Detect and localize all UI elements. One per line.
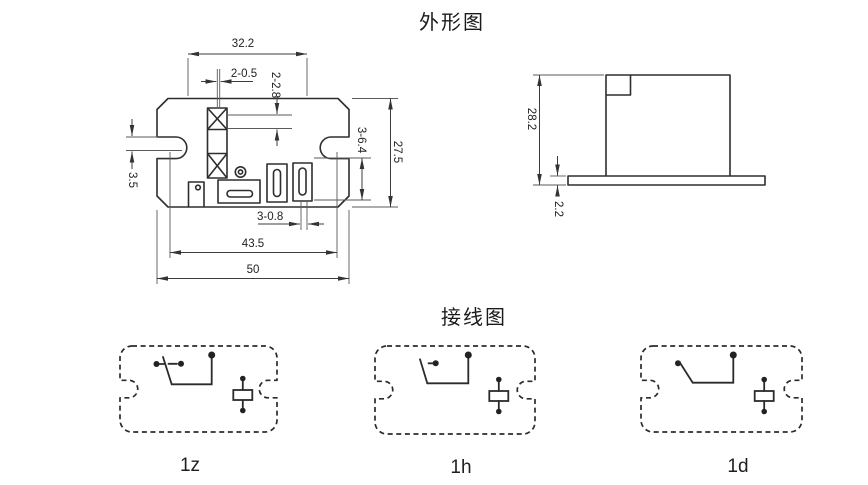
coil-terminal-dot <box>761 409 767 415</box>
contact-form-label-1d: 1d <box>727 456 748 477</box>
dim-slot-offset: 3.5 <box>126 119 182 188</box>
dim-top-width: 32.2 <box>188 38 307 96</box>
datasheet-drawing-page: 外形图 接线图 <box>0 0 868 485</box>
no-contact-dot <box>433 360 439 366</box>
dim-flange-thickness: 2.2 <box>550 156 566 217</box>
svg-text:2-2.8: 2-2.8 <box>269 72 281 98</box>
svg-text:32.2: 32.2 <box>232 38 254 50</box>
coil-terminal-dot <box>761 377 767 383</box>
svg-text:50: 50 <box>247 264 260 276</box>
nc-contact-dot <box>154 361 160 367</box>
svg-text:43.5: 43.5 <box>242 238 264 250</box>
outline-drawing-title: 外形图 <box>419 11 485 34</box>
wiring-diagram-title: 接线图 <box>441 306 507 329</box>
side-body <box>606 75 730 176</box>
svg-text:3.5: 3.5 <box>126 172 138 188</box>
dim-overall-height: 28.2 <box>525 75 604 185</box>
contact-arm <box>163 357 172 384</box>
dim-terminal-pitch: 2-2.8 <box>227 72 292 146</box>
common-terminal-dot <box>730 352 737 359</box>
relay-outline-dashed <box>641 346 802 432</box>
wiring-diagram-1h: 1h <box>375 346 535 478</box>
coil-terminal-dot <box>496 409 502 415</box>
svg-text:2-0.5: 2-0.5 <box>231 68 257 80</box>
dim-slot-width: 3-0.8 <box>257 201 324 230</box>
wiring-diagram-1z: 1z <box>120 346 277 476</box>
coil-terminal-horizontal <box>218 180 260 203</box>
coil-symbol <box>489 377 508 415</box>
common-terminal-dot <box>208 352 215 359</box>
side-view: 28.2 2.2 <box>525 75 765 217</box>
svg-text:27.5: 27.5 <box>391 141 403 163</box>
coil-terminal-dot <box>240 376 246 382</box>
svg-text:2.2: 2.2 <box>552 201 564 217</box>
relay-outline-dashed <box>375 346 535 434</box>
contact-form-label-1h: 1h <box>450 457 471 478</box>
side-flange <box>568 176 765 185</box>
changeover-contact <box>154 352 216 385</box>
rivet-hole <box>235 167 245 177</box>
coil-terminal-dot <box>496 377 502 383</box>
front-view: 32.2 2-0.5 2-2.8 3.5 <box>126 38 403 284</box>
svg-text:3-6.4: 3-6.4 <box>355 127 367 154</box>
coil-symbol <box>233 376 252 414</box>
common-terminal-dot <box>465 352 472 359</box>
dim-slot-length: 3-6.4 <box>314 127 371 200</box>
technical-drawing-canvas: 外形图 接线图 <box>0 0 868 485</box>
coil-terminal-dot <box>240 408 246 414</box>
relay-outline-dashed <box>120 346 277 432</box>
corner-block <box>189 182 205 207</box>
svg-text:3-0.8: 3-0.8 <box>257 211 283 223</box>
dim-terminal-width: 2-0.5 <box>201 68 257 107</box>
coil-symbol <box>755 377 774 415</box>
contact-arm <box>420 359 427 383</box>
normally-open-contact <box>420 352 472 384</box>
blade-terminal-1 <box>267 164 287 202</box>
no-contact-dot <box>178 361 184 367</box>
contact-form-label-1z: 1z <box>180 455 200 476</box>
wiring-diagram-1d: 1d <box>641 346 802 477</box>
blade-terminal-2 <box>293 163 312 201</box>
terminal-block <box>208 108 228 178</box>
side-corner-notch <box>606 75 631 95</box>
contact-arm <box>680 362 693 383</box>
svg-text:28.2: 28.2 <box>525 108 537 130</box>
normally-closed-contact <box>675 352 737 383</box>
